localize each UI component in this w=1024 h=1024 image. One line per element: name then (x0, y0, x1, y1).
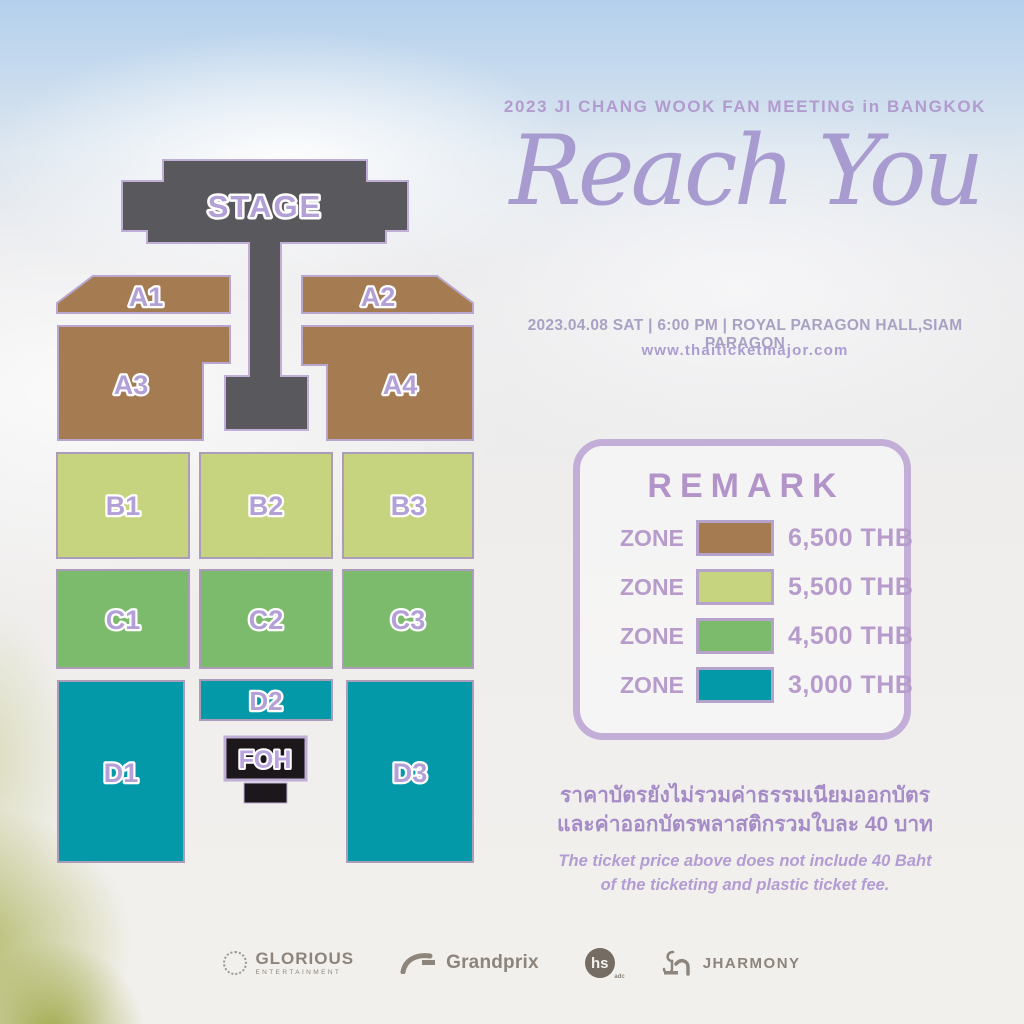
zone-c-color-swatch (696, 618, 774, 654)
zone-d2-label: D2 (249, 686, 282, 716)
zone-a-color-swatch (696, 520, 774, 556)
sponsor-hs-name: hs (591, 955, 609, 972)
sponsor-grandprix-name: Grandprix (446, 952, 539, 974)
zone-c1-label: C1 (106, 605, 141, 635)
sponsor-glorious-name: GLORIOUS (255, 950, 354, 967)
fee-note-thai-line1: ราคาบัตรยังไม่รวมค่าธรรมเนียมออกบัตร (556, 781, 934, 810)
zone-d-price: 3,000 THB (788, 671, 913, 700)
zone-c-price: 4,500 THB (788, 622, 913, 651)
sponsor-jharmony-name: JHARMONY (703, 955, 801, 972)
zone-c3-label: C3 (391, 605, 426, 635)
hs-circle-logo: hs adc (585, 948, 615, 978)
fan-meeting-poster: 2023 JI CHANG WOOK FAN MEETING in BANGKO… (0, 0, 1024, 1024)
fee-note-english-line1: The ticket price above does not include … (556, 850, 934, 874)
zone-a4-label: A4 (383, 370, 418, 400)
remark-row-zone-c: ZONE 4,500 THB (580, 618, 904, 654)
zone-b3-label: B3 (391, 491, 426, 521)
sponsor-grandprix: Grandprix (400, 952, 539, 974)
zone-word: ZONE (620, 525, 684, 552)
zone-d3-label: D3 (393, 758, 428, 788)
sponsor-hs: hs adc (585, 948, 615, 978)
zone-a1-label: A1 (129, 282, 164, 312)
zone-b1-label: B1 (106, 491, 141, 521)
seat-map: STAGE A1 A2 A3 A4 B1 B2 B3 C1 C2 C3 D1 D… (40, 150, 500, 880)
foh-label: FOH (239, 746, 292, 774)
zone-d1-label: D1 (104, 758, 139, 788)
remark-panel: REMARK ZONE 6,500 THB ZONE 5,500 THB ZON… (573, 439, 911, 740)
sponsor-glorious-subtext: ENTERTAINMENT (255, 970, 354, 977)
sponsor-jharmony: JHARMONY (661, 949, 801, 977)
grandprix-swoosh-icon (400, 952, 438, 974)
sponsor-logos: GLORIOUS ENTERTAINMENT Grandprix hs adc (0, 948, 1024, 978)
remark-row-zone-a: ZONE 6,500 THB (580, 520, 904, 556)
zone-c2-label: C2 (249, 605, 284, 635)
remark-row-zone-d: ZONE 3,000 THB (580, 667, 904, 703)
zone-b-color-swatch (696, 569, 774, 605)
sponsor-hs-subtext: adc (614, 974, 624, 980)
foh-base (244, 783, 287, 803)
zone-word: ZONE (620, 623, 684, 650)
glorious-wreath-icon (223, 951, 247, 975)
zone-a2-label: A2 (361, 282, 396, 312)
remark-rows: ZONE 6,500 THB ZONE 5,500 THB ZONE 4,500… (580, 520, 904, 703)
event-logo-script: Reach You (500, 116, 990, 226)
ticket-website-link[interactable]: www.thaiticketmajor.com (500, 342, 990, 359)
sponsor-glorious: GLORIOUS ENTERTAINMENT (223, 950, 354, 977)
fee-note-english-line2: of the ticketing and plastic ticket fee. (556, 874, 934, 898)
zone-b2-label: B2 (249, 491, 284, 521)
stage-label: STAGE (208, 189, 323, 224)
zone-a-price: 6,500 THB (788, 524, 913, 553)
fee-notes: ราคาบัตรยังไม่รวมค่าธรรมเนียมออกบัตร และ… (556, 781, 934, 898)
zone-word: ZONE (620, 574, 684, 601)
zone-word: ZONE (620, 672, 684, 699)
zone-d-color-swatch (696, 667, 774, 703)
event-title: 2023 JI CHANG WOOK FAN MEETING in BANGKO… (500, 97, 990, 117)
zone-a3-label: A3 (114, 370, 149, 400)
zone-b-price: 5,500 THB (788, 573, 913, 602)
jharmony-mark-icon (661, 949, 695, 977)
fee-note-thai-line2: และค่าออกบัตรพลาสติกรวมใบละ 40 บาท (556, 810, 934, 839)
remark-title: REMARK (580, 467, 904, 506)
remark-row-zone-b: ZONE 5,500 THB (580, 569, 904, 605)
